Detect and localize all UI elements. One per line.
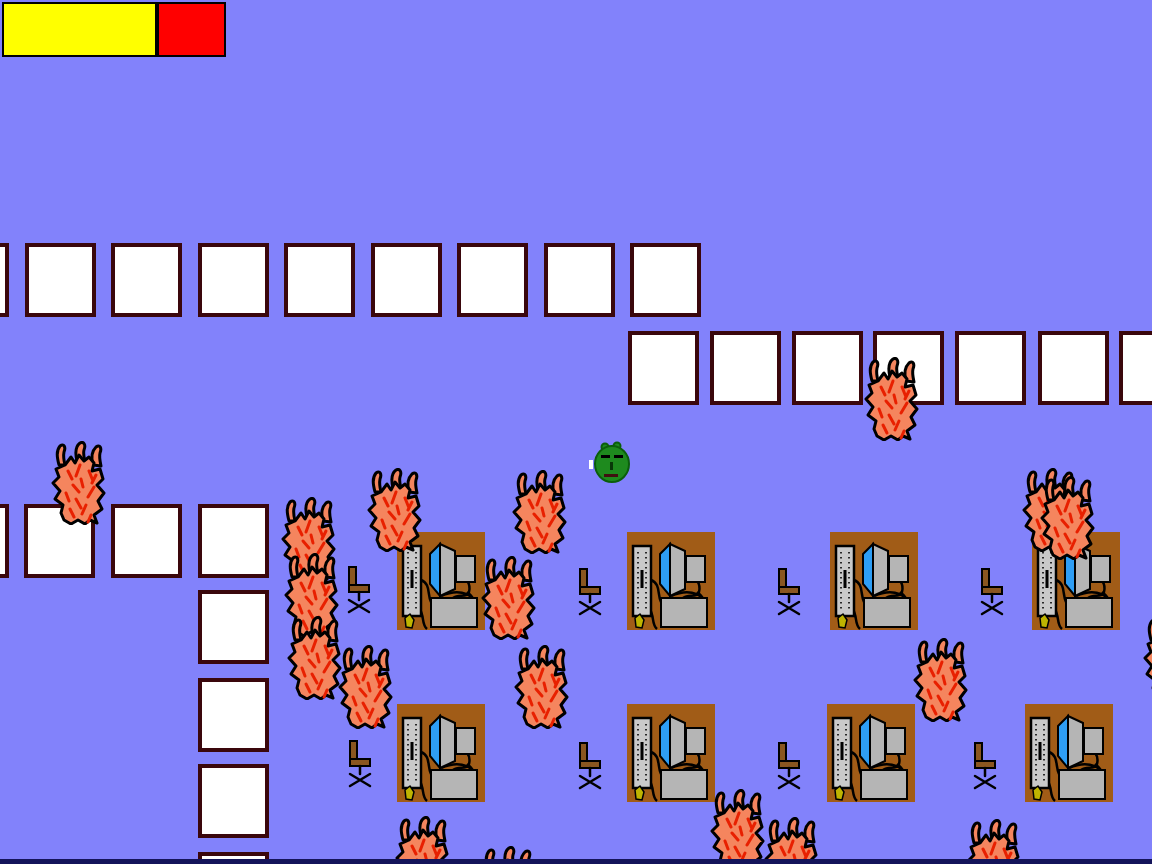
floor-tile xyxy=(710,331,781,405)
fire-sprite xyxy=(395,816,451,864)
fire-sprite xyxy=(966,819,1022,864)
health-segment-red xyxy=(157,2,226,57)
office-chair-sprite xyxy=(972,741,998,791)
floor-tile xyxy=(792,331,863,405)
floor-tile xyxy=(111,504,182,578)
game-viewport[interactable] xyxy=(0,0,1152,864)
fire-sprite xyxy=(710,789,766,864)
office-chair-sprite xyxy=(979,567,1005,617)
fire-sprite xyxy=(338,645,394,729)
desk-sprite xyxy=(397,704,485,802)
desk-sprite xyxy=(627,532,715,630)
office-chair-sprite xyxy=(347,739,373,789)
office-chair-sprite xyxy=(776,567,802,617)
fire-sprite xyxy=(287,616,343,700)
player-head xyxy=(589,441,633,485)
office-chair-sprite xyxy=(776,741,802,791)
fire-sprite xyxy=(481,556,537,640)
fire-sprite xyxy=(367,468,423,552)
floor-tile xyxy=(371,243,442,317)
floor-tile xyxy=(198,678,269,752)
floor-tile xyxy=(457,243,528,317)
floor-tile xyxy=(0,504,9,578)
floor-tile xyxy=(955,331,1026,405)
floor-tile xyxy=(198,504,269,578)
office-chair-sprite xyxy=(577,741,603,791)
floor-tile xyxy=(284,243,355,317)
floor-tile xyxy=(111,243,182,317)
floor-tile xyxy=(198,764,269,838)
floor-tile xyxy=(630,243,701,317)
sprite-layer xyxy=(0,0,1152,864)
desk-sprite xyxy=(827,704,915,802)
fire-sprite xyxy=(913,638,969,722)
floor-tile xyxy=(25,243,96,317)
floor-tile xyxy=(1038,331,1109,405)
floor-tile xyxy=(544,243,615,317)
bottom-bar xyxy=(0,859,1152,864)
health-bar xyxy=(2,2,226,57)
desk-sprite xyxy=(830,532,918,630)
desk-sprite xyxy=(1025,704,1113,802)
floor-tile xyxy=(198,590,269,664)
fire-sprite xyxy=(51,441,107,525)
office-chair-sprite xyxy=(577,567,603,617)
health-segment-yellow xyxy=(2,2,157,57)
fire-sprite xyxy=(764,817,820,864)
fire-sprite xyxy=(1040,476,1096,560)
office-chair-sprite xyxy=(346,565,372,615)
fire-sprite xyxy=(864,357,920,441)
desk-sprite xyxy=(627,704,715,802)
floor-tile xyxy=(0,243,9,317)
floor-tile xyxy=(628,331,699,405)
fire-sprite xyxy=(512,470,568,554)
fire-sprite xyxy=(1143,616,1152,700)
floor-tile xyxy=(1119,331,1152,405)
floor-tile xyxy=(198,243,269,317)
fire-sprite xyxy=(514,645,570,729)
